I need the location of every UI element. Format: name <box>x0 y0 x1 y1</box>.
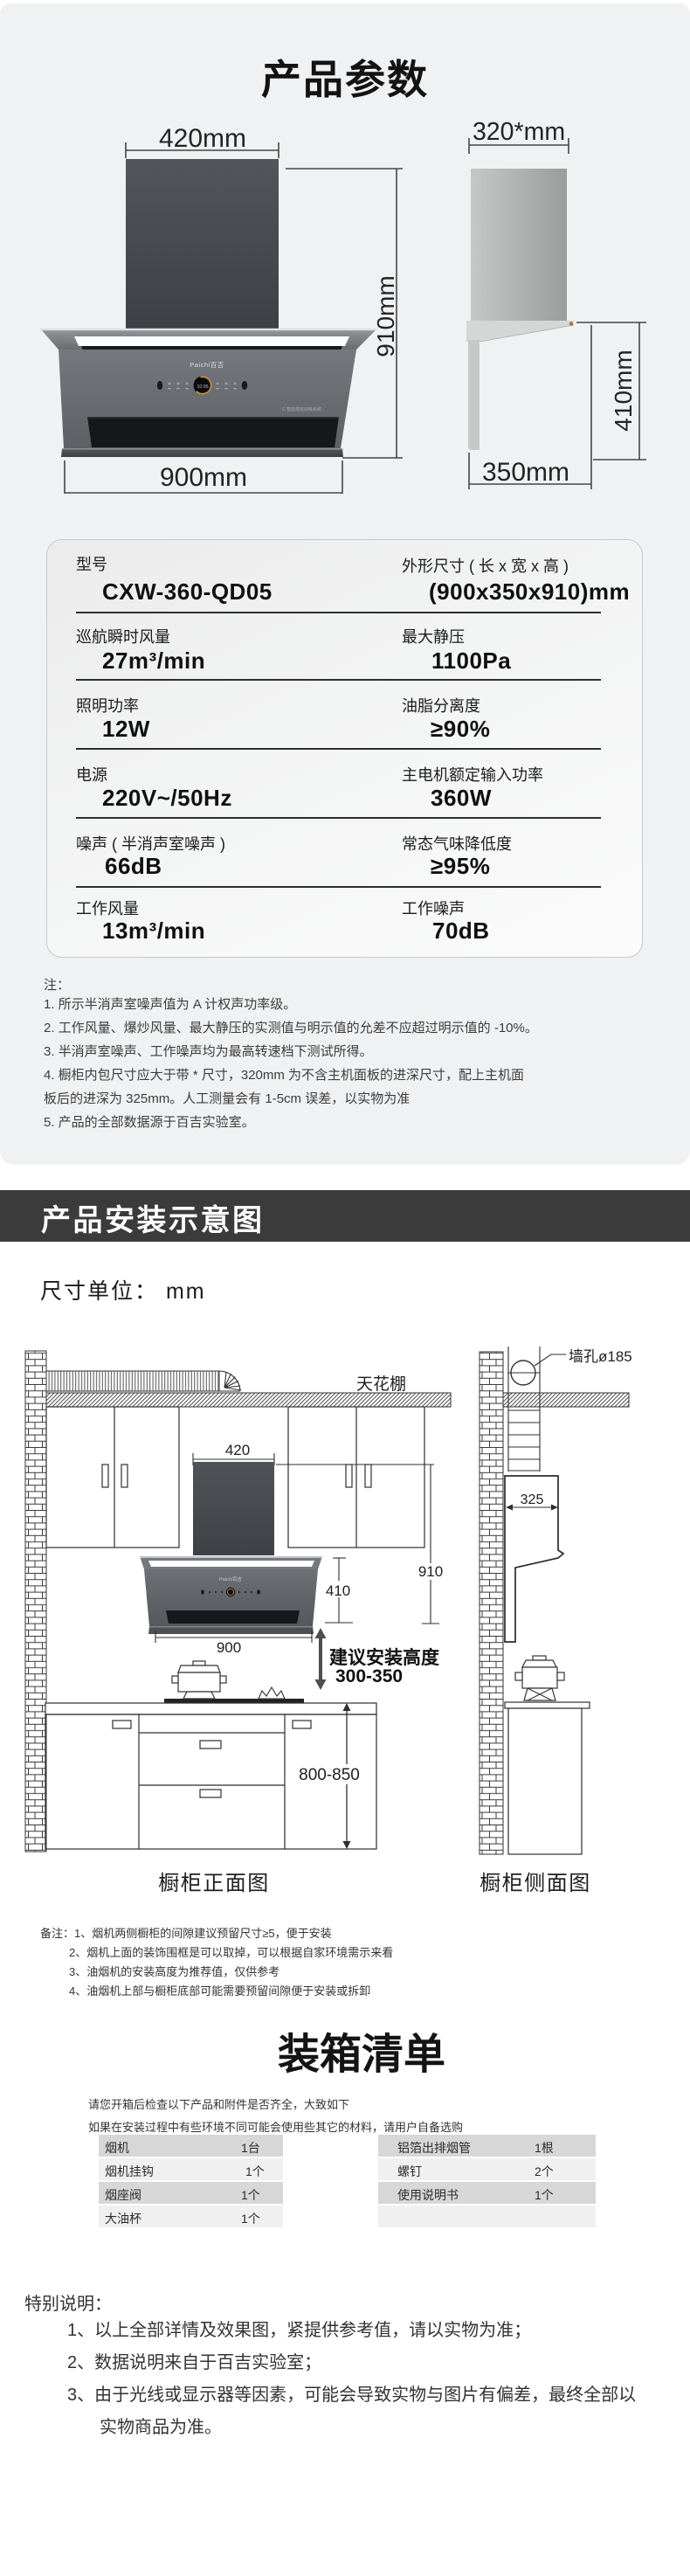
svg-text:410: 410 <box>326 1582 350 1599</box>
svg-text:320*mm: 320*mm <box>473 118 565 146</box>
svg-text:Paichi百吉: Paichi百吉 <box>219 1576 242 1582</box>
svg-text:910: 910 <box>418 1563 443 1580</box>
svg-text:900: 900 <box>217 1639 241 1656</box>
svg-text:410mm: 410mm <box>610 350 637 431</box>
svg-text:900mm: 900mm <box>160 463 247 492</box>
svg-text:420mm: 420mm <box>159 124 246 153</box>
svg-text:800-850: 800-850 <box>299 1766 360 1784</box>
svg-text:Paichi百吉: Paichi百吉 <box>190 361 224 369</box>
svg-text:300-350: 300-350 <box>335 1666 403 1686</box>
svg-text:325: 325 <box>521 1492 544 1507</box>
svg-text:10:95: 10:95 <box>197 384 209 390</box>
svg-text:C 智能高效劲吸系统: C 智能高效劲吸系统 <box>282 406 321 412</box>
svg-text:橱柜侧面图: 橱柜侧面图 <box>480 1872 591 1895</box>
svg-text:910mm: 910mm <box>372 275 399 357</box>
svg-text:橱柜正面图: 橱柜正面图 <box>158 1872 270 1895</box>
svg-text:建议安装高度: 建议安装高度 <box>329 1647 439 1668</box>
svg-text:墙孔ø185: 墙孔ø185 <box>569 1348 632 1365</box>
svg-text:天花棚: 天花棚 <box>356 1375 406 1394</box>
svg-text:420: 420 <box>225 1442 250 1458</box>
svg-text:350mm: 350mm <box>482 458 569 487</box>
